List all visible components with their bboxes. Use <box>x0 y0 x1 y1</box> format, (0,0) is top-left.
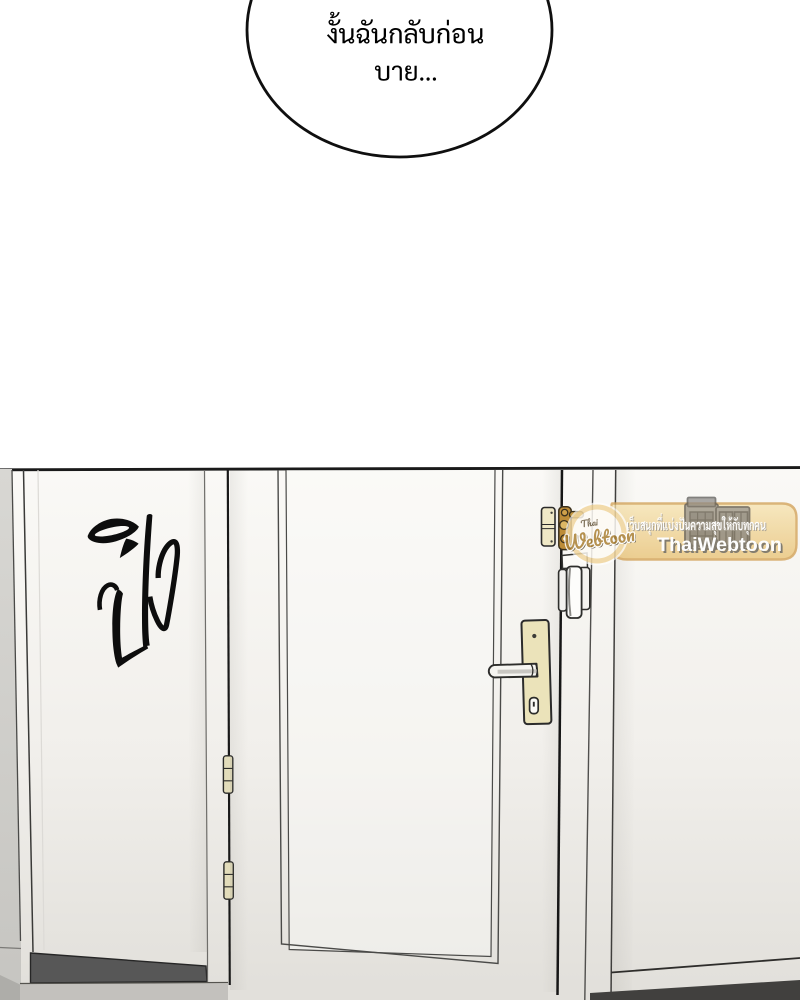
svg-text:ThaiWebtoon: ThaiWebtoon <box>657 534 782 556</box>
